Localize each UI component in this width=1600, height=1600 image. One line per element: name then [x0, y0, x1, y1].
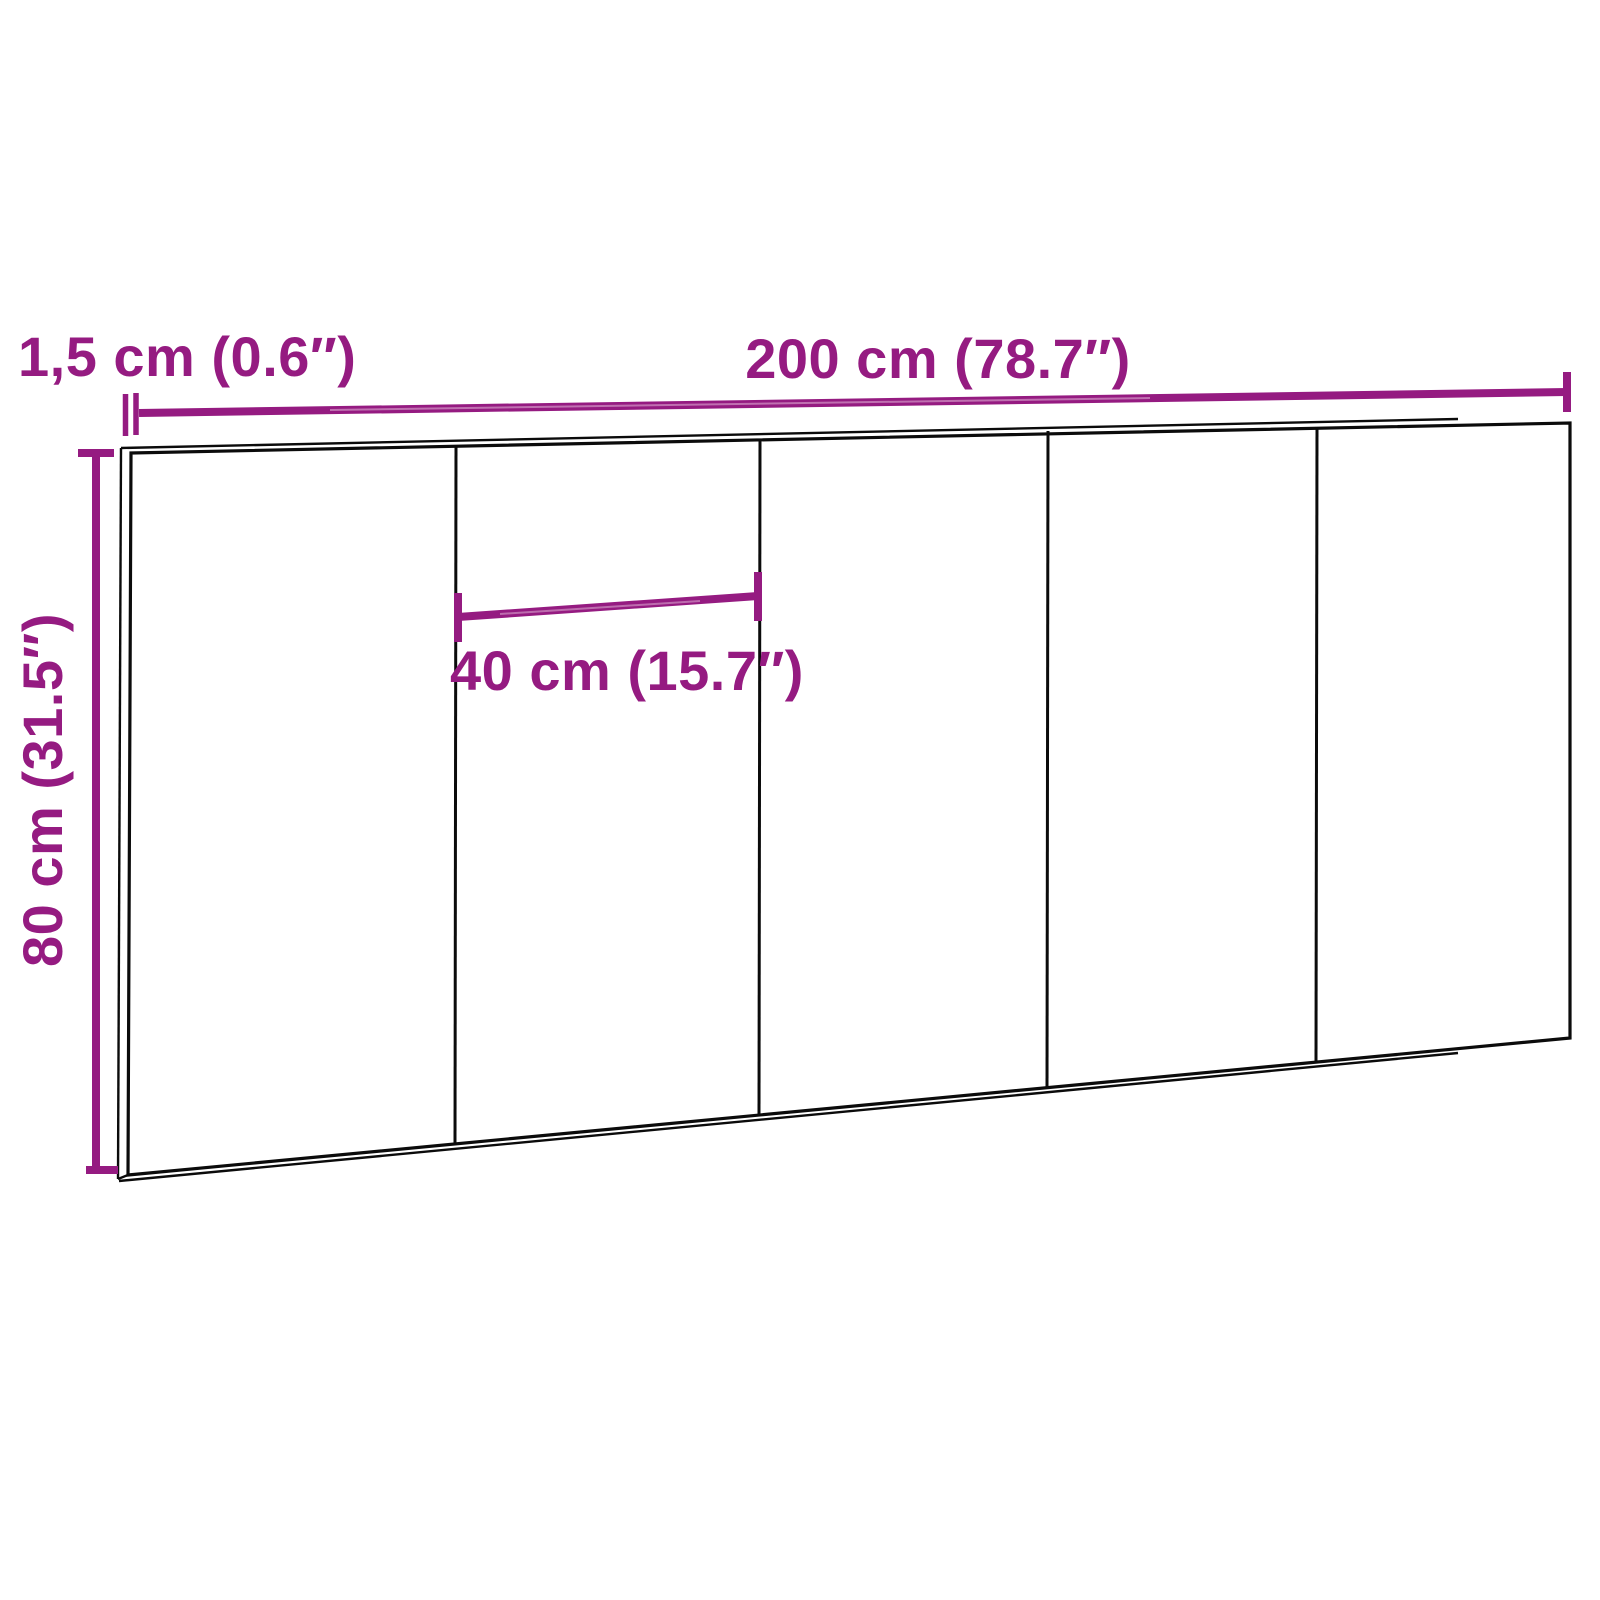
- height-dimension: 80 cm (31.5″): [11, 453, 118, 1170]
- headboard-bottom-back-edge: [119, 1053, 1458, 1181]
- headboard-left-thickness-edge: [118, 448, 121, 1179]
- panel-divider-2: [759, 440, 760, 1115]
- headboard-drawing: [118, 419, 1570, 1181]
- total-width-label: 200 cm (78.7″): [745, 327, 1131, 390]
- panel-divider-1: [455, 445, 456, 1145]
- panel-divider-3: [1047, 431, 1048, 1088]
- panel-divider-4: [1316, 427, 1317, 1062]
- height-label: 80 cm (31.5″): [11, 613, 74, 967]
- panel-width-dimension-line-highlight: [500, 601, 700, 614]
- panel-width-dimension: 40 cm (15.7″): [450, 572, 804, 702]
- panel-width-label: 40 cm (15.7″): [450, 639, 804, 702]
- thickness-dimension: 1,5 cm (0.6″): [18, 325, 356, 436]
- total-width-dimension-line-highlight: [330, 398, 1150, 410]
- headboard-left-bottom-wedge: [118, 1175, 128, 1179]
- dimension-diagram-canvas: 200 cm (78.7″) 1,5 cm (0.6″) 40 cm (15.7…: [0, 0, 1600, 1600]
- headboard-dimension-diagram: 200 cm (78.7″) 1,5 cm (0.6″) 40 cm (15.7…: [0, 0, 1600, 1600]
- thickness-label: 1,5 cm (0.6″): [18, 325, 356, 388]
- headboard-top-back-edge: [121, 419, 1458, 448]
